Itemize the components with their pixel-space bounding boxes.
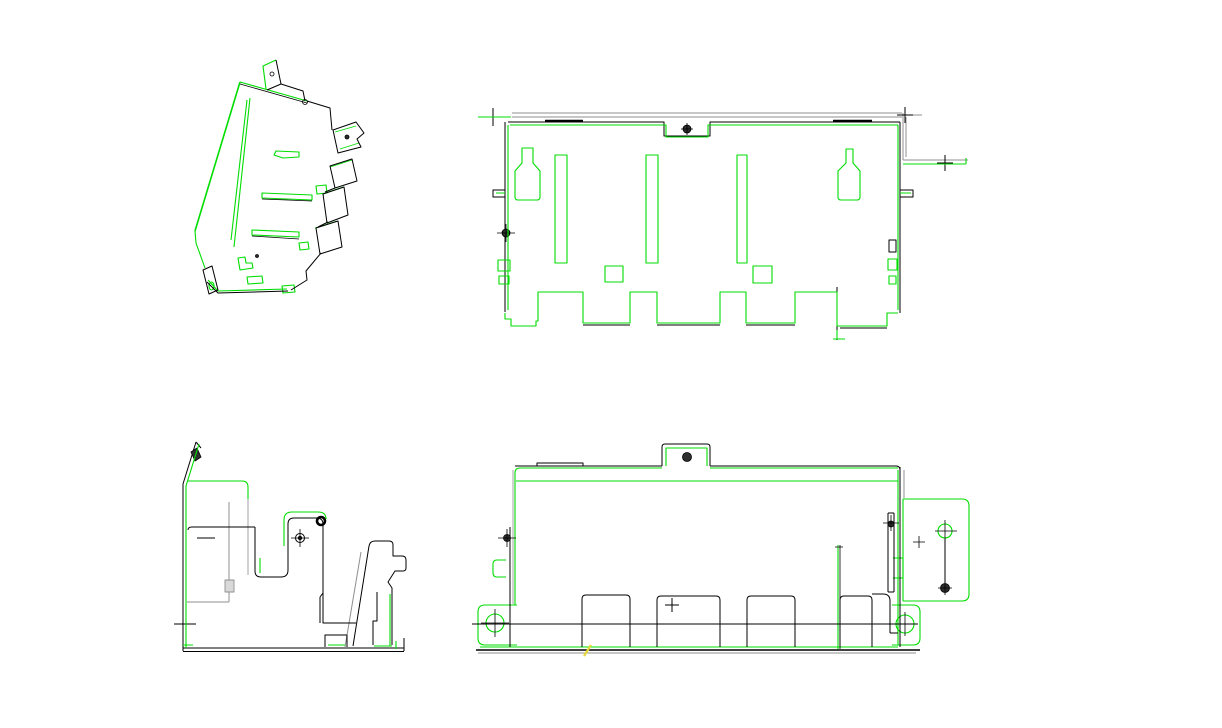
isometric-view[interactable]: [180, 40, 380, 305]
drawing-canvas[interactable]: [0, 0, 1222, 728]
side-green-geometry: [183, 444, 396, 649]
front-green-geometry: [478, 448, 969, 649]
side-gray-geometry: [187, 499, 361, 647]
iso-black-geometry: [203, 60, 364, 294]
top-black-geometry: [484, 107, 953, 340]
front-gray-geometry: [478, 470, 916, 653]
side-view[interactable]: [168, 428, 416, 666]
front-view[interactable]: [458, 428, 982, 670]
front-black-geometry: [472, 444, 957, 650]
top-view[interactable]: [468, 98, 980, 350]
top-green-geometry: [478, 117, 966, 339]
iso-green-geometry: [195, 60, 359, 293]
side-black-geometry: [174, 442, 406, 652]
